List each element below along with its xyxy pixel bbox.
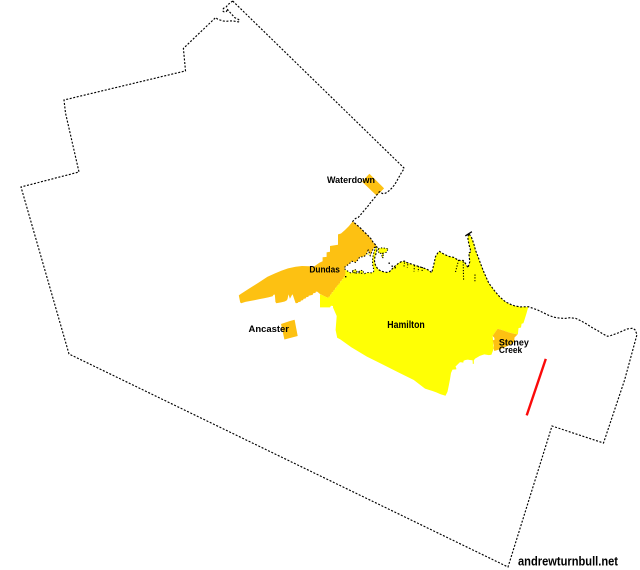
svg-text:andrewturnbull.net: andrewturnbull.net	[518, 553, 619, 568]
svg-text:Hamilton: Hamilton	[387, 320, 425, 331]
svg-text:Waterdown: Waterdown	[327, 175, 375, 185]
svg-text:Dundas: Dundas	[309, 264, 340, 274]
svg-text:Ancaster: Ancaster	[249, 324, 290, 334]
svg-text:Creek: Creek	[499, 345, 522, 355]
